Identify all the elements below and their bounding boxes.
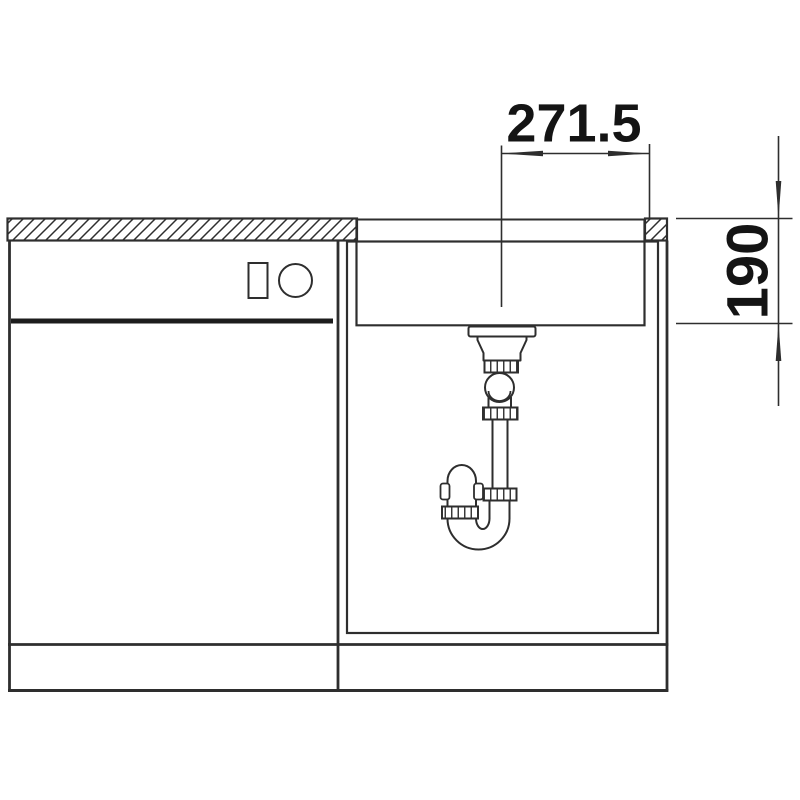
coupling-nut-top-ribs: [485, 361, 519, 373]
trap-inlet-nut-ribs: [484, 489, 517, 501]
countertop-left-section: [8, 219, 358, 241]
sink-installation-diagram: 271.5 190: [0, 0, 800, 800]
trap-lug-left: [441, 484, 450, 500]
dimension-width-value: 271.5: [506, 94, 641, 154]
strainer-cup: [478, 337, 527, 361]
trap-lug-right: [474, 484, 483, 500]
dimension-depth-value: 190: [716, 223, 781, 320]
technical-drawing-svg: 271.5 190: [0, 0, 800, 800]
dishwasher-door-gap-bar: [11, 319, 333, 324]
diagram-background: [0, 0, 800, 800]
strainer-flange: [469, 327, 536, 337]
countertop-right-section: [645, 219, 667, 241]
coupling-nut-mid-ribs: [483, 408, 518, 420]
trap-cap-nut-ribs: [442, 507, 478, 519]
